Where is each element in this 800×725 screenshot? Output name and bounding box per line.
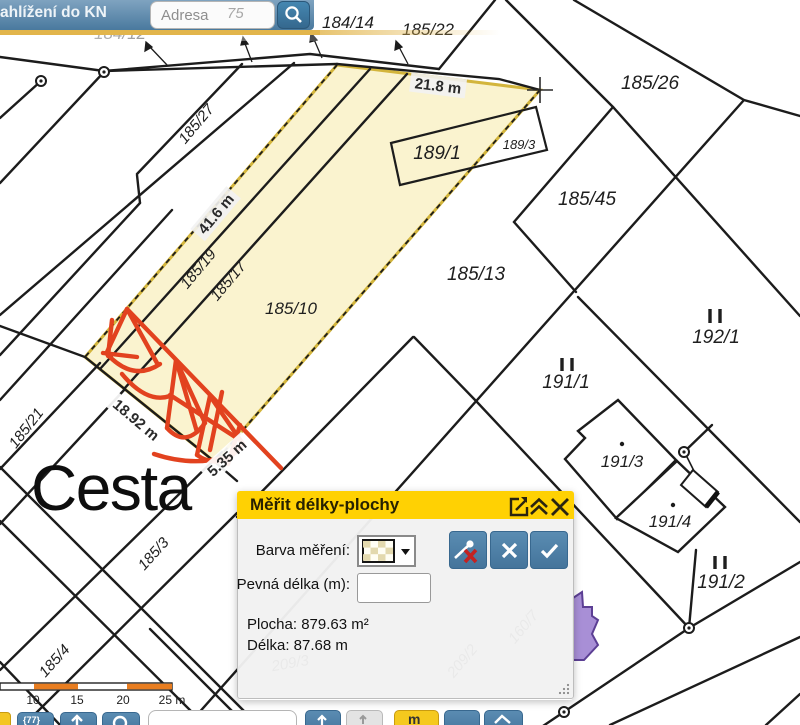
svg-text:191/4: 191/4 — [649, 512, 692, 531]
svg-text:Cesta: Cesta — [31, 452, 193, 524]
svg-text:185/13: 185/13 — [447, 264, 506, 285]
svg-text:189/3: 189/3 — [503, 137, 536, 152]
svg-text:191/3: 191/3 — [601, 452, 644, 471]
svg-text:191/2: 191/2 — [697, 572, 745, 593]
svg-text:189/1: 189/1 — [413, 143, 461, 164]
svg-text:192/1: 192/1 — [692, 327, 740, 348]
svg-text:191/1: 191/1 — [542, 372, 590, 393]
svg-text:185/45: 185/45 — [558, 189, 617, 210]
svg-text:25 m: 25 m — [159, 693, 186, 707]
svg-text:185/21: 185/21 — [6, 405, 48, 452]
svg-text:10: 10 — [26, 693, 40, 707]
svg-text:15: 15 — [70, 693, 84, 707]
svg-text:185/4: 185/4 — [36, 641, 74, 680]
svg-text:20: 20 — [116, 693, 130, 707]
svg-text:185/3: 185/3 — [135, 534, 173, 574]
svg-text:185/10: 185/10 — [265, 299, 318, 318]
svg-text:185/27: 185/27 — [175, 101, 218, 148]
svg-text:185/26: 185/26 — [621, 73, 680, 94]
